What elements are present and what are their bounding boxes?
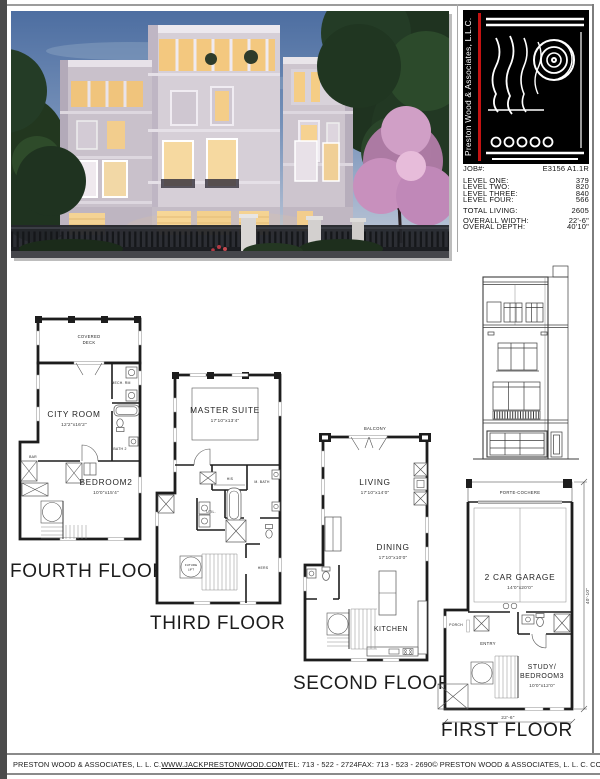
balcony-label: BALCONY xyxy=(364,426,386,431)
dining-label: DINING xyxy=(376,542,409,552)
kitchen-label: KITCHEN xyxy=(374,626,408,633)
foreground-tree-left xyxy=(16,146,86,216)
job-info-table: JOB#:E3156 A1.1R LEVEL ONE:379 LEVEL TWO… xyxy=(463,166,589,231)
master-suite-dim: 17'10"x13'4" xyxy=(211,418,240,424)
third-floor-title: THIRD FLOOR xyxy=(150,613,285,635)
page-edge-shadow xyxy=(0,0,7,779)
dining-dim: 17'10"x10'0" xyxy=(379,555,408,561)
future-lift-label: FUTURE xyxy=(185,563,197,567)
master-suite-label: MASTER SUITE xyxy=(190,405,260,415)
job-number-row: JOB#:E3156 A1.1R xyxy=(463,166,589,173)
entry-label: ENTRY xyxy=(480,641,496,646)
svg-text:LIFT: LIFT xyxy=(188,568,194,572)
porte-cochere-label: PORTE-COCHERE xyxy=(500,490,541,495)
overall-depth-row: OVERAL DEPTH:40'10" xyxy=(463,224,589,231)
footer-company: PRESTON WOOD & ASSOCIATES, L. L. C. xyxy=(13,760,161,769)
sheet-footer: PRESTON WOOD & ASSOCIATES, L. L. C. WWW.… xyxy=(0,753,600,775)
living-dim: 17'10"x14'0" xyxy=(361,490,390,496)
garage-dim: 14'0"x20'0" xyxy=(507,585,533,591)
city-room-dim: 12'2"x16'2" xyxy=(61,422,87,428)
mbath-label: M. BATH xyxy=(254,480,270,484)
mech-rm-label: MECH. RM xyxy=(111,381,130,385)
footer-website: WWW.JACKPRESTONWOOD.COM xyxy=(161,760,283,769)
first-floor-plan: PORTE-COCHERE 2 CAR GARAGE 14'0"x20'0" P… xyxy=(430,476,594,728)
second-floor-title: SECOND FLOOR xyxy=(293,673,452,695)
top-rule xyxy=(7,4,593,6)
level-four-row: LEVEL FOUR:566 xyxy=(463,197,589,204)
living-label: LIVING xyxy=(359,477,390,487)
porch-label: PORCH xyxy=(449,623,463,627)
building-photo xyxy=(11,11,449,258)
drawing-sheet: Preston Wood & Associates, L.L.C. xyxy=(0,0,600,779)
street xyxy=(11,251,449,258)
svg-text:BEDROOM3: BEDROOM3 xyxy=(520,673,564,680)
bedroom2-dim: 10'0"x15'4" xyxy=(93,490,119,496)
footer-fax: FAX: 713 - 523 - 2690 xyxy=(358,760,432,769)
util-label: UTIL. xyxy=(206,510,216,514)
study-label: STUDY/ xyxy=(528,664,557,671)
total-living-row: TOTAL LIVING:2605 xyxy=(463,208,589,215)
study-dim: 10'0"x12'0" xyxy=(529,683,555,689)
footer-tel: TEL: 713 - 522 - 2724 xyxy=(284,760,358,769)
garage-label: 2 CAR GARAGE xyxy=(485,572,556,582)
bath2-label: BATH 2 xyxy=(113,447,126,451)
title-block-divider xyxy=(457,4,458,252)
hers-label: HERS xyxy=(258,566,269,570)
bedroom2-label: BEDROOM2 xyxy=(79,477,132,487)
second-floor-plan: BALCONY LIVING 17'10"x14'0" DINING 17'10… xyxy=(291,417,443,665)
company-logo: Preston Wood & Associates, L.L.C. xyxy=(463,10,589,164)
footer-copyright: © PRESTON WOOD & ASSOCIATES, L. L. C. CO… xyxy=(432,760,600,769)
covered-deck-label: COVERED xyxy=(78,334,101,339)
front-elevation-drawing xyxy=(467,263,585,463)
city-room-label: CITY ROOM xyxy=(47,409,100,419)
column-capital-engraving xyxy=(484,12,588,162)
third-floor-plan: MASTER SUITE 17'10"x13'4" HIS M. BATH UT… xyxy=(142,362,302,608)
company-name-vertical: Preston Wood & Associates, L.L.C. xyxy=(463,12,478,162)
his-label: HIS xyxy=(227,477,234,481)
first-floor-title: FIRST FLOOR xyxy=(441,720,573,742)
depth-dimension: 40'-10" xyxy=(585,588,591,604)
bar-label: BAR xyxy=(29,455,37,459)
svg-text:DECK: DECK xyxy=(83,340,96,345)
logo-red-stripe xyxy=(478,13,481,161)
foreground-tree-right xyxy=(317,24,401,108)
